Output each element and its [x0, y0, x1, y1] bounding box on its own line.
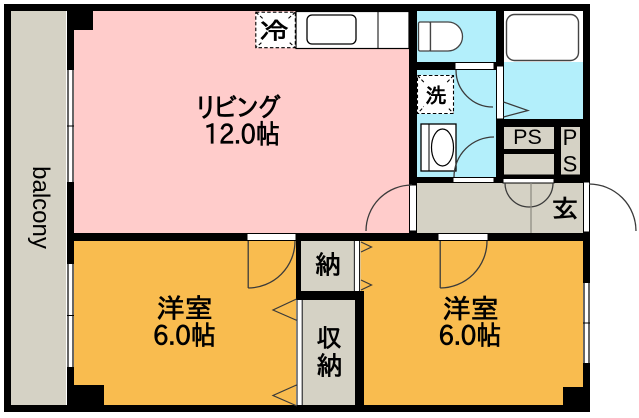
- svg-text:balcony: balcony: [27, 166, 54, 249]
- svg-text:S: S: [563, 152, 578, 177]
- svg-text:P: P: [563, 125, 578, 150]
- svg-text:PS: PS: [513, 125, 542, 149]
